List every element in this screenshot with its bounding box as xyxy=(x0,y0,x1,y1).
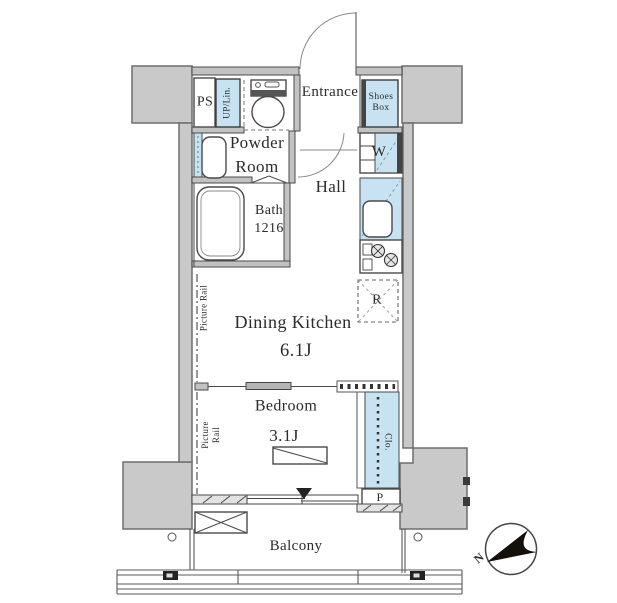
room-label-hall: Hall xyxy=(316,177,347,197)
drain-symbol xyxy=(414,533,422,541)
label-closet: Clo. xyxy=(381,433,392,451)
gas-stove xyxy=(360,240,402,273)
toilet-tank-band xyxy=(251,90,286,96)
pillar-bottom-right xyxy=(400,448,467,529)
drain-symbol xyxy=(168,533,176,541)
pillar-top-right xyxy=(402,66,462,123)
label-picture-rail-bedroom: Picture Rail xyxy=(200,421,223,449)
right-exterior-wall xyxy=(403,123,413,448)
room-label-bedroom: Bedroom xyxy=(255,396,317,415)
room-label-bath: Bath 1216 xyxy=(254,202,284,238)
floor-plan: PS UP/Lin. Entrance Shoes Box Powder Roo… xyxy=(0,0,617,603)
entrance-door xyxy=(300,12,356,70)
washbasin xyxy=(194,133,226,178)
compass-rose xyxy=(486,524,538,575)
sliding-partition xyxy=(195,383,337,391)
wall-tab xyxy=(463,477,470,485)
room-label-shoes-box: Shoes Box xyxy=(369,92,394,114)
pillar-bottom-left xyxy=(123,462,192,529)
label-bedroom-size: 3.1J xyxy=(269,426,298,446)
top-wall xyxy=(192,67,402,75)
label-picture-rail-dk: Picture Rail xyxy=(199,285,210,331)
kitchen-counter xyxy=(360,178,402,240)
label-dining-kitchen-size: 6.1J xyxy=(280,340,312,362)
kitchen-sink xyxy=(363,201,392,237)
toilet xyxy=(244,80,289,130)
room-label-ps: PS xyxy=(197,95,213,112)
room-label-entrance: Entrance xyxy=(302,83,359,101)
wall-tab xyxy=(463,497,470,506)
label-porch: P xyxy=(376,490,383,504)
desk-counter xyxy=(273,447,327,464)
room-label-up-lin: UP/Lin. xyxy=(222,87,233,119)
hall-door xyxy=(298,133,344,177)
room-label-balcony: Balcony xyxy=(270,537,323,555)
label-refrigerator: R xyxy=(372,293,382,310)
room-label-powder-room: Powder Room xyxy=(230,131,284,179)
room-label-dining-kitchen: Dining Kitchen xyxy=(234,312,351,334)
pillar-top-left xyxy=(132,66,192,123)
label-washing-machine: W xyxy=(372,143,387,161)
left-exterior-wall xyxy=(179,123,192,462)
